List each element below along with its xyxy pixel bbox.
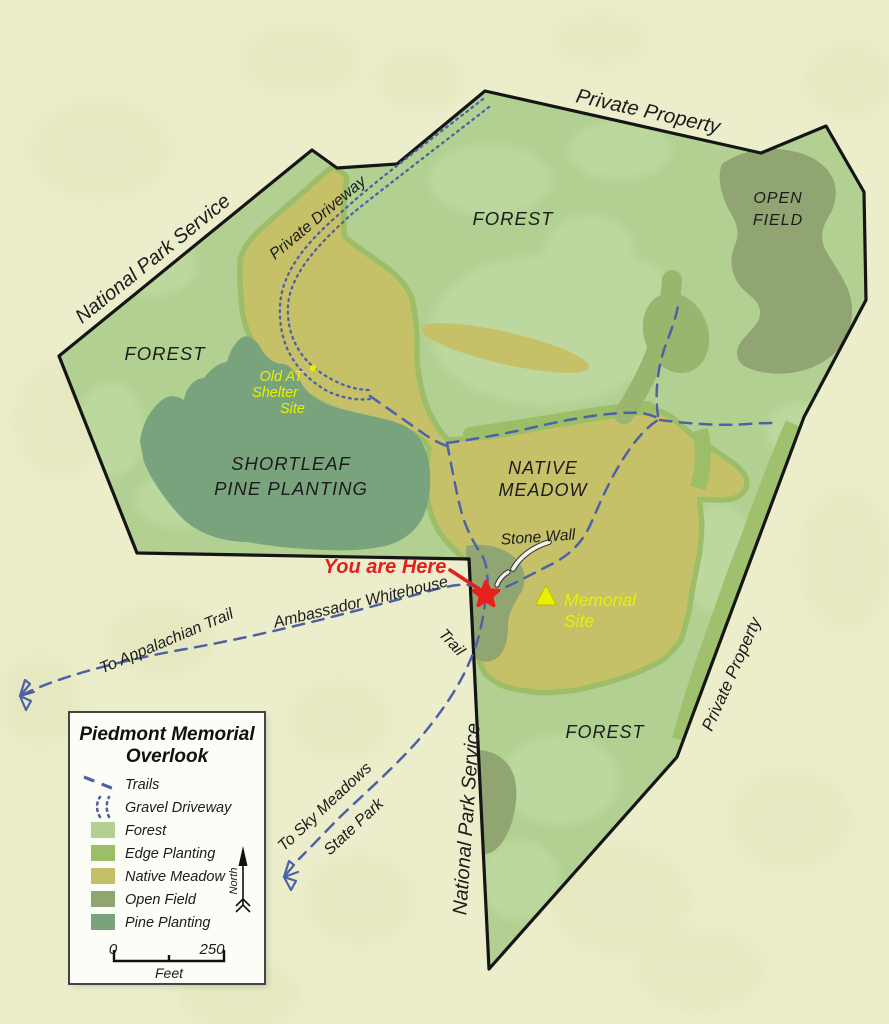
svg-text:OPEN: OPEN <box>753 190 802 207</box>
svg-text:Overlook: Overlook <box>126 746 210 767</box>
svg-text:Pine Planting: Pine Planting <box>125 915 210 931</box>
svg-text:Open Field: Open Field <box>125 892 197 908</box>
svg-text:Site: Site <box>564 611 594 631</box>
svg-text:Old AT: Old AT <box>259 369 304 385</box>
svg-text:SHORTLEAF: SHORTLEAF <box>231 453 351 474</box>
svg-text:Piedmont Memorial: Piedmont Memorial <box>79 724 255 745</box>
svg-text:FOREST: FOREST <box>472 208 554 229</box>
svg-text:PINE PLANTING: PINE PLANTING <box>214 478 368 499</box>
svg-text:Memorial: Memorial <box>564 590 637 610</box>
svg-text:Trails: Trails <box>125 777 159 793</box>
svg-text:Site: Site <box>280 401 305 417</box>
svg-text:Shelter: Shelter <box>252 385 299 401</box>
svg-text:FOREST: FOREST <box>124 343 206 364</box>
svg-text:Edge Planting: Edge Planting <box>125 846 215 862</box>
svg-text:FIELD: FIELD <box>753 212 803 229</box>
svg-text:MEADOW: MEADOW <box>499 480 589 500</box>
svg-text:You are Here: You are Here <box>324 556 447 578</box>
svg-text:North: North <box>228 868 240 895</box>
svg-text:Forest: Forest <box>125 823 167 839</box>
svg-text:250: 250 <box>198 941 225 958</box>
svg-text:Gravel Driveway: Gravel Driveway <box>125 800 232 816</box>
svg-text:Feet: Feet <box>155 965 184 981</box>
svg-text:Native Meadow: Native Meadow <box>125 869 226 885</box>
svg-text:NATIVE: NATIVE <box>508 458 578 478</box>
svg-text:FOREST: FOREST <box>565 722 645 742</box>
